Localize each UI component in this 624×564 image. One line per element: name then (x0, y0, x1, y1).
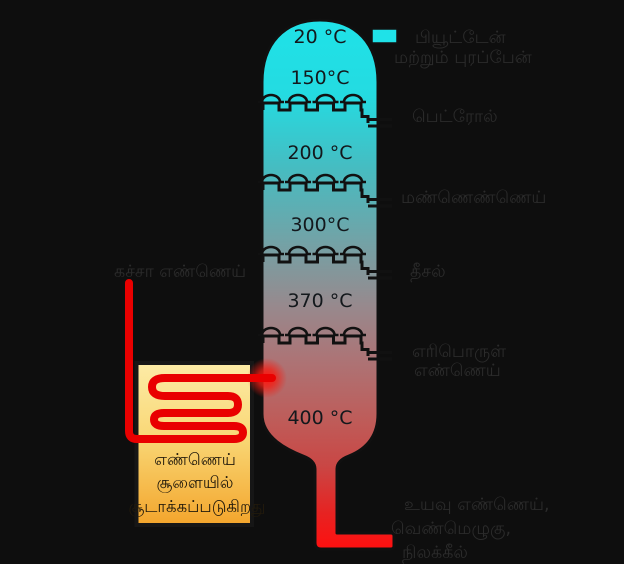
temp-label-400: 400 °C (287, 407, 352, 429)
furnace-label-line3: சூடாக்கப்படுகிறது (129, 497, 266, 517)
furnace-label-line2: சூளையில் (157, 473, 234, 493)
temp-label-20: 20 °C (294, 26, 347, 48)
product-label-petrol: பெட்ரோல் (412, 107, 498, 127)
product-label-residue-line1: உயவு எண்ணெய், (404, 495, 550, 515)
temp-label-200: 200 °C (287, 142, 352, 164)
distillation-diagram: 20 °C 150°C 200 °C 300°C 370 °C 400 °C ப… (0, 0, 624, 564)
product-label-kerosene: மண்ணெண்ணெய் (401, 188, 546, 208)
product-label-residue-line3: நிலக்கீல் (402, 543, 468, 564)
product-label-fuel-oil-line1: எரிபொருள் (412, 342, 507, 362)
product-label-butane-propane-line1: பியூட்டேன் (415, 28, 507, 48)
product-label-butane-propane-line2: மற்றும் புரப்பேன் (394, 48, 533, 68)
furnace-label-line1: எண்ணெய் (154, 450, 236, 469)
temp-label-370: 370 °C (287, 290, 352, 312)
product-label-fuel-oil-line2: எண்ணெய் (414, 361, 501, 381)
top-outlet-pipe (372, 29, 397, 43)
product-label-residue-line2: வெண்மெழுகு, (391, 519, 511, 540)
temp-label-150: 150°C (290, 67, 349, 89)
crude-oil-label: கச்சா எண்ணெய் (114, 262, 246, 282)
temp-label-300: 300°C (290, 214, 349, 236)
diagram-stage: 20 °C 150°C 200 °C 300°C 370 °C 400 °C ப… (0, 0, 624, 564)
product-label-diesel: தீசல் (410, 262, 446, 283)
